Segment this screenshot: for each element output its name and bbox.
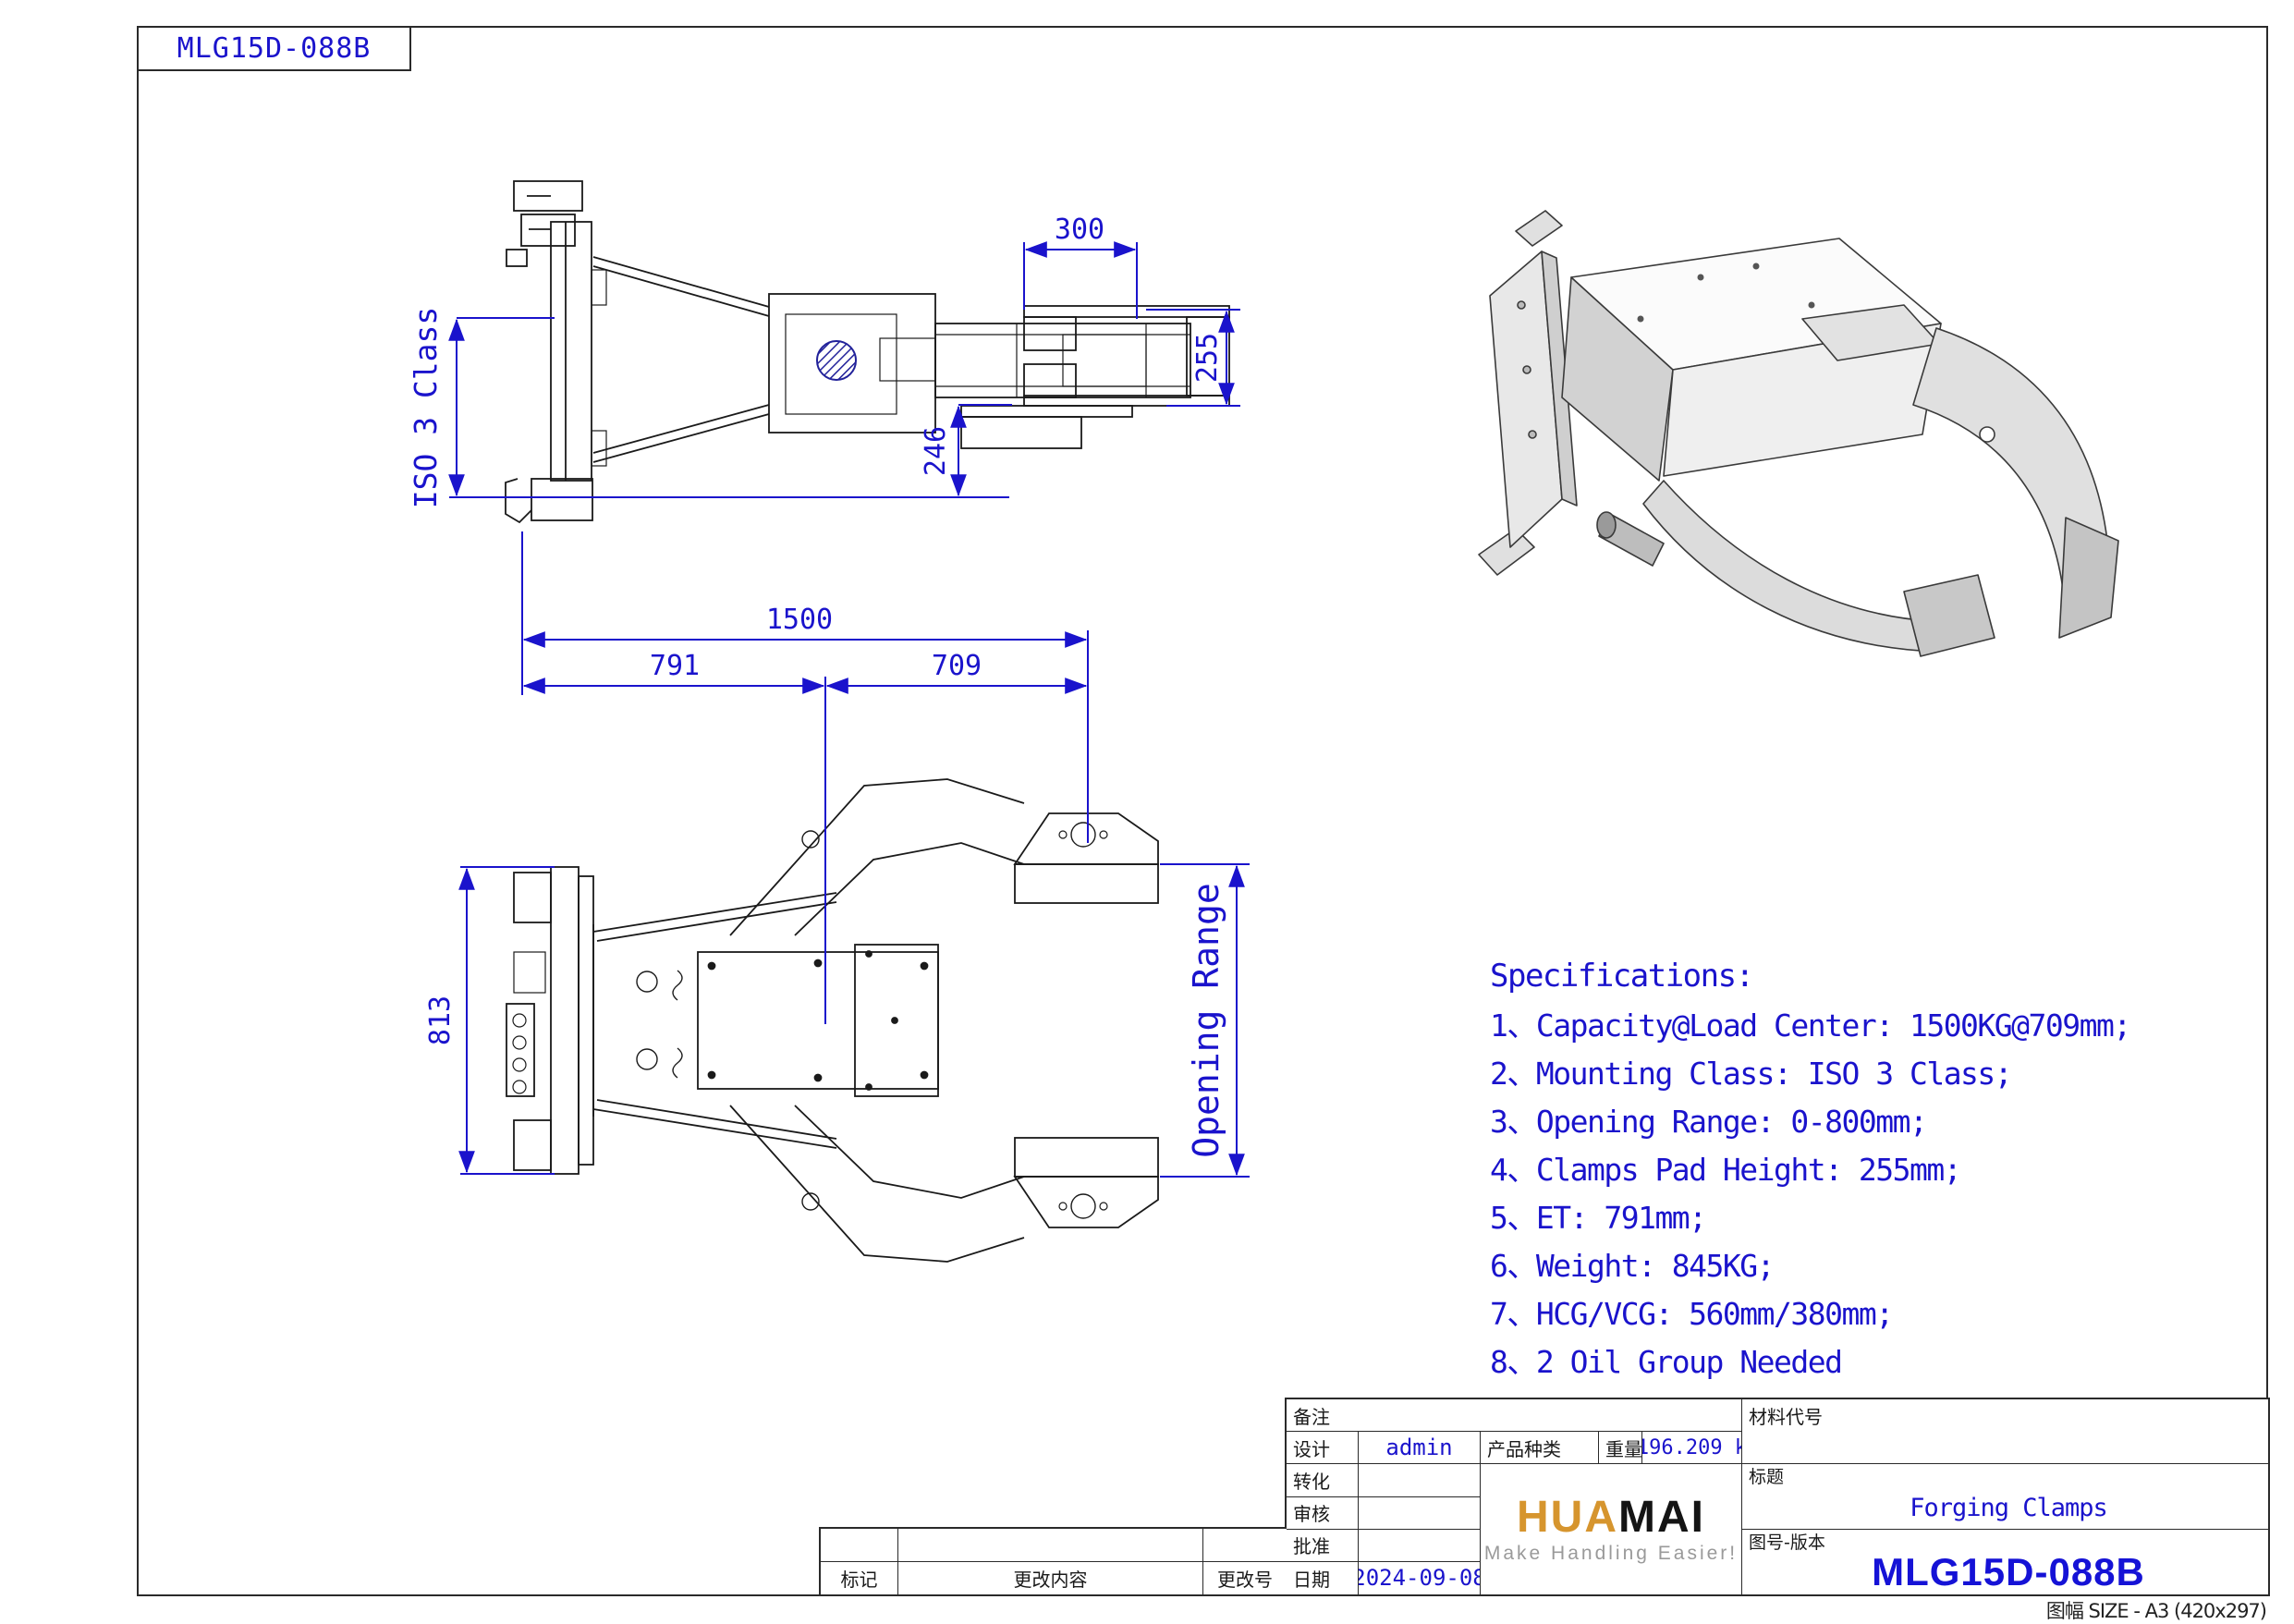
date-label-cell: 日期 [1287, 1562, 1359, 1594]
material-code-cell: 材料代号 [1742, 1399, 2268, 1464]
product-type-cell: 产品种类 [1481, 1432, 1599, 1464]
plan-view [506, 779, 1158, 1262]
side-view [506, 181, 1229, 522]
isometric-view [1479, 211, 2118, 656]
spec-item: 5、ET: 791mm; [1490, 1194, 2192, 1242]
dim-791-label: 791 [650, 650, 700, 682]
revision-strip: 标记 更改内容 更改号 [819, 1527, 1287, 1596]
dim-255-label: 255 [1191, 333, 1224, 383]
dim-opening-range-label: Opening Range [1186, 883, 1226, 1157]
specs-title: Specifications: [1490, 950, 2192, 1002]
dim-709-label: 709 [932, 650, 982, 682]
approve-label-cell: 批准 [1287, 1530, 1359, 1562]
design-value-cell: admin [1359, 1432, 1481, 1464]
logo-tagline: Make Handling Easier! [1484, 1543, 1738, 1565]
spec-item: 2、Mounting Class: ISO 3 Class; [1490, 1050, 2192, 1098]
mark-label-cell: 标记 [821, 1562, 898, 1595]
spec-item: 7、HCG/VCG: 560mm/380mm; [1490, 1290, 2192, 1338]
spec-item: 4、Clamps Pad Height: 255mm; [1490, 1146, 2192, 1194]
dim-1500-label: 1500 [766, 604, 833, 636]
spec-item: 6、Weight: 845KG; [1490, 1242, 2192, 1290]
review-label-cell: 审核 [1287, 1497, 1359, 1530]
rev-empty-cell [821, 1529, 898, 1562]
dim-813-label: 813 [424, 995, 457, 1045]
remark-label-cell: 备注 [1287, 1399, 1742, 1432]
weight-value-cell: 1196.209 kg [1642, 1432, 1742, 1464]
date-value-cell: 2024-09-08 [1359, 1562, 1481, 1594]
spec-item: 3、Opening Range: 0-800mm; [1490, 1098, 2192, 1146]
huamai-logo: HUAMAI [1517, 1495, 1705, 1541]
drawing-no-cell: 图号-版本 MLG15D-088B [1742, 1530, 2268, 1594]
convert-label-cell: 转化 [1287, 1464, 1359, 1496]
logo-hua: HUA [1517, 1493, 1618, 1542]
design-label-cell: 设计 [1287, 1432, 1359, 1464]
review-value-cell [1359, 1497, 1481, 1530]
logo-cell: HUAMAI Make Handling Easier! [1481, 1464, 1742, 1594]
dim-iso3-label: ISO 3 Class [408, 307, 444, 509]
rev-empty-cell [1203, 1529, 1287, 1562]
specifications-block: Specifications: 1、Capacity@Load Center: … [1490, 950, 2192, 1386]
sheet-size-note: 图幅 SIZE - A3 (420x297) [1987, 1596, 2266, 1624]
change-no-cell: 更改号 [1203, 1562, 1287, 1595]
title-value: Forging Clamps [1749, 1494, 2268, 1522]
weight-label-cell: 重量 [1599, 1432, 1642, 1464]
logo-mai: MAI [1618, 1493, 1705, 1542]
title-label: 标题 [1749, 1466, 1784, 1488]
rev-empty-cell [898, 1529, 1203, 1562]
dim-300-label: 300 [1055, 214, 1104, 246]
title-block-table: 备注 材料代号 设计 admin 产品种类 重量 1196.209 kg 转化 … [1285, 1398, 2270, 1596]
drawing-no-value: MLG15D-088B [1749, 1550, 2268, 1594]
spec-item: 1、Capacity@Load Center: 1500KG@709mm; [1490, 1002, 2192, 1050]
spec-item: 8、2 Oil Group Needed [1490, 1338, 2192, 1386]
approve-value-cell [1359, 1530, 1481, 1562]
dim-246-label: 246 [920, 426, 952, 476]
change-content-cell: 更改内容 [898, 1562, 1203, 1595]
convert-value-cell [1359, 1464, 1481, 1496]
title-cell: 标题 Forging Clamps [1742, 1464, 2268, 1529]
